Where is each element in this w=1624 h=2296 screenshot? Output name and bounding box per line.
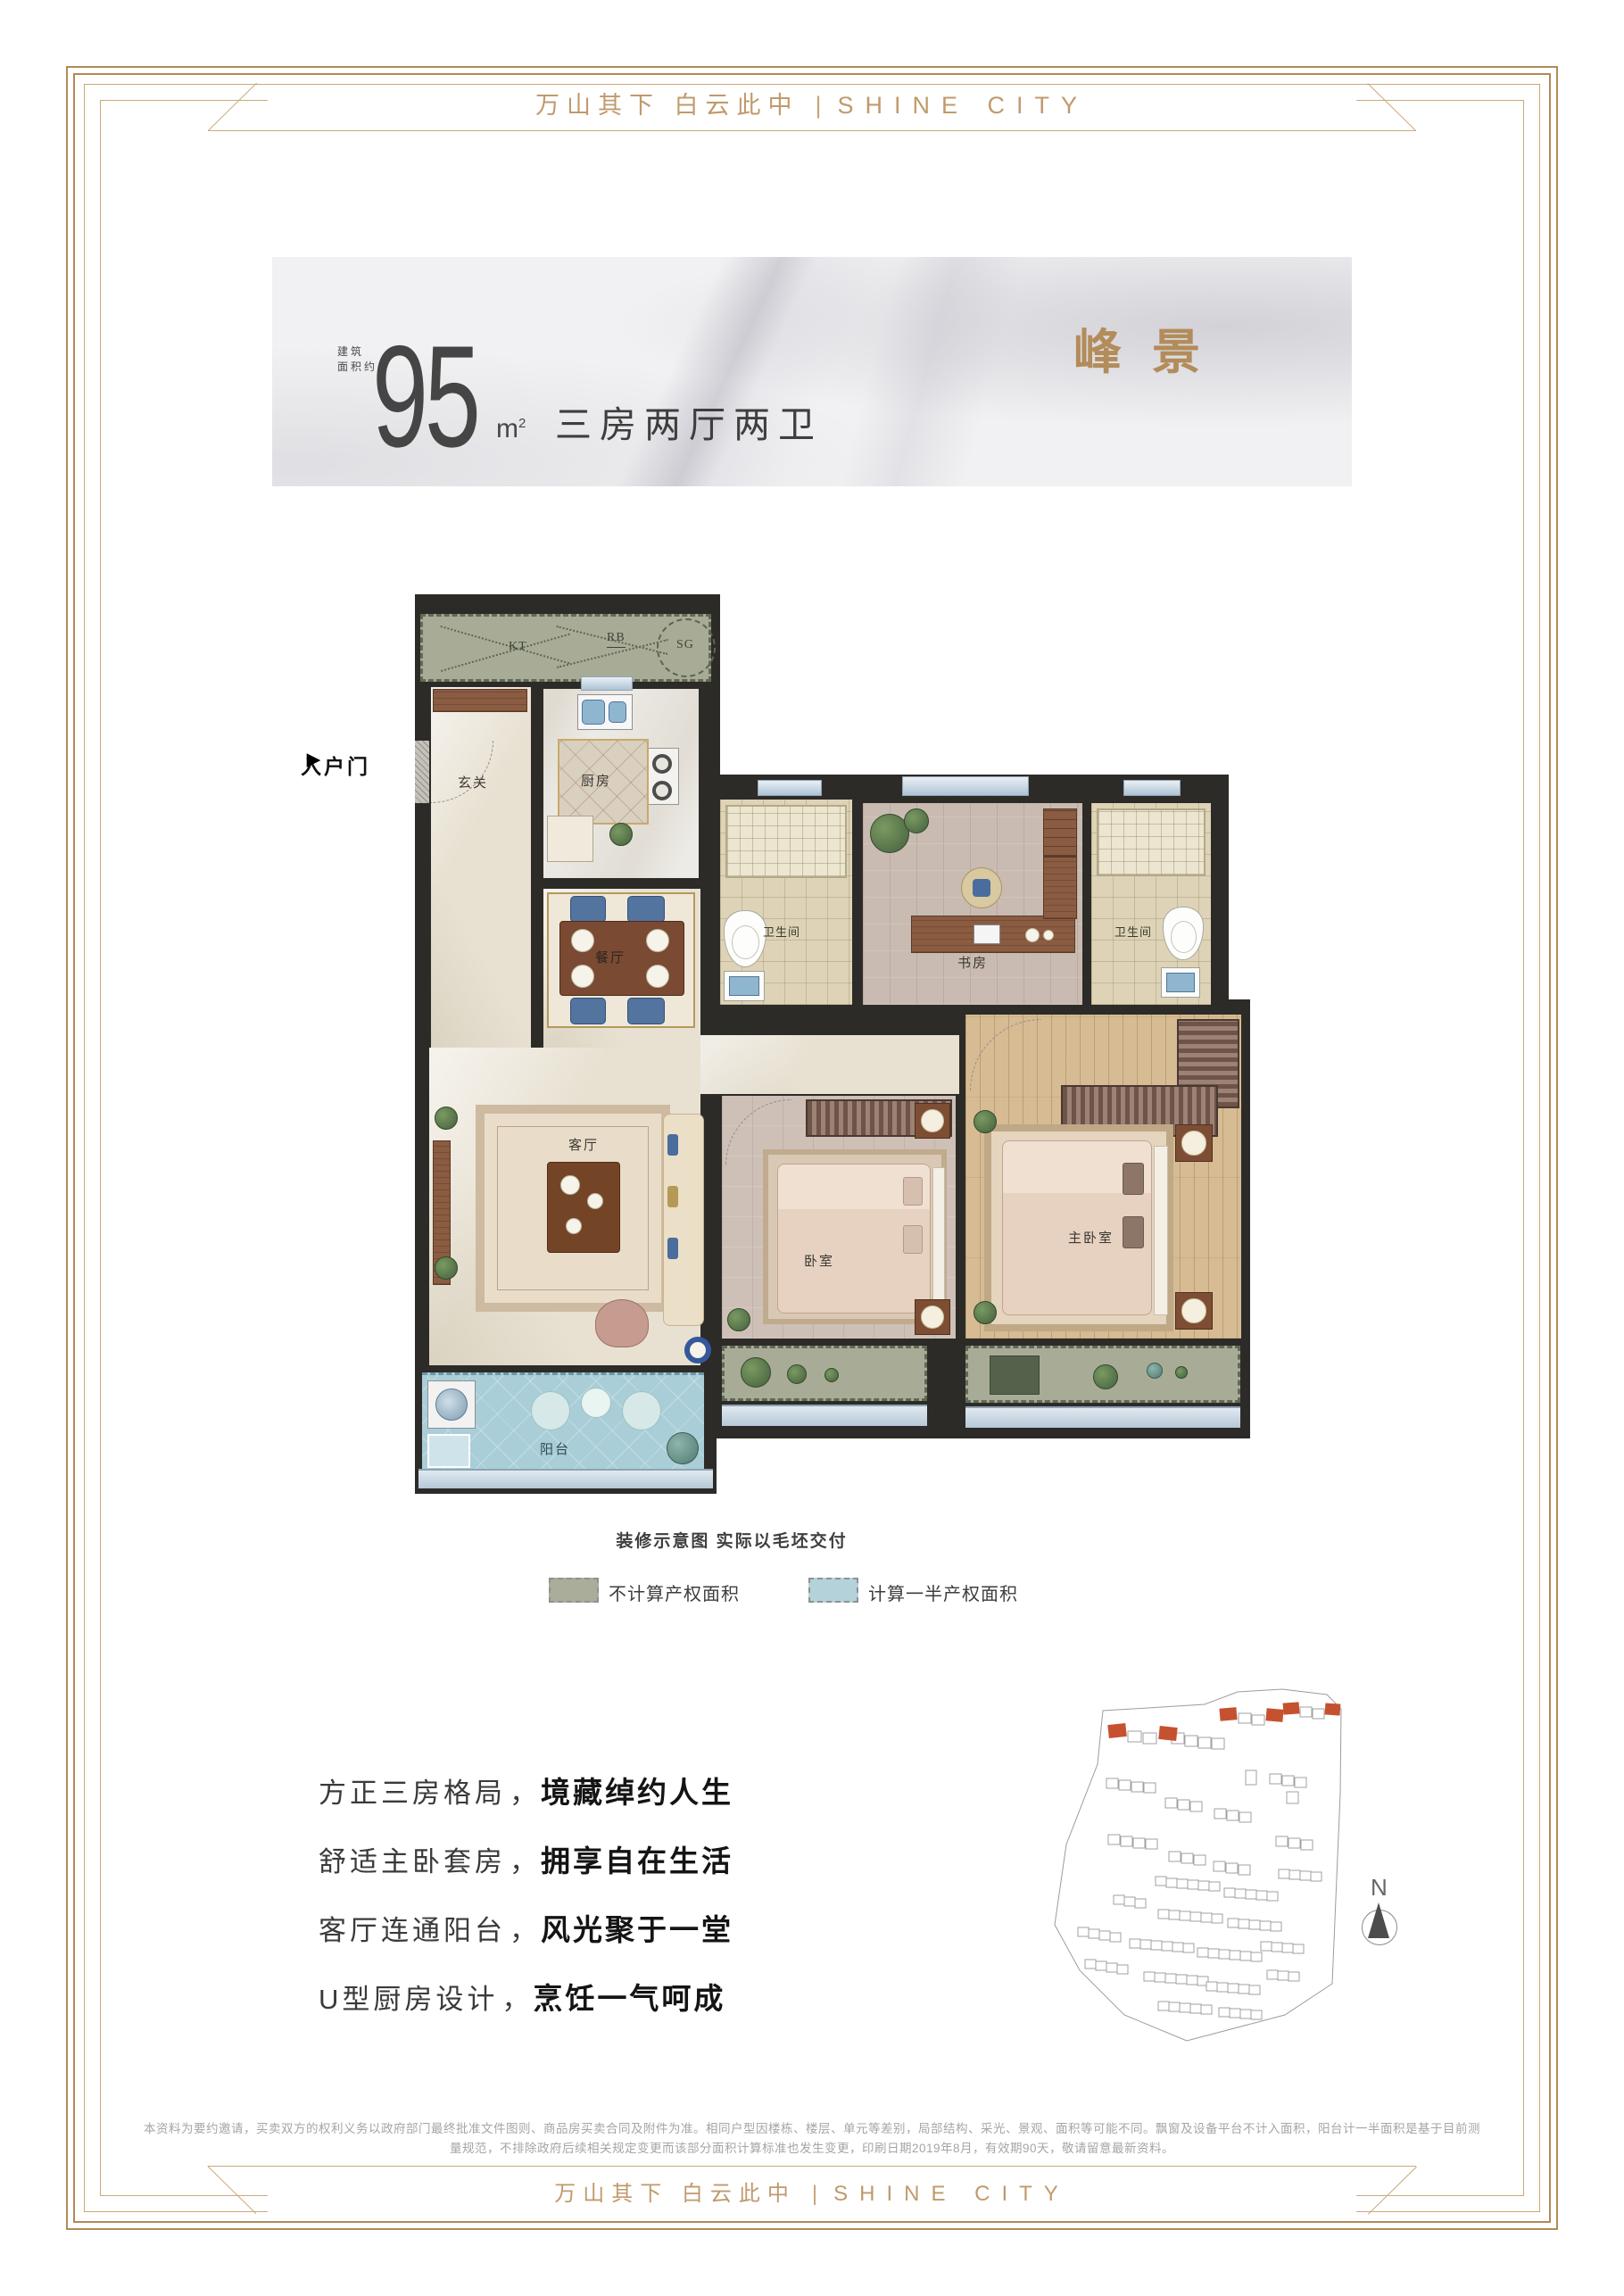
floor-lamp [684,1337,711,1364]
selling-point-comma: ， [510,1778,537,1809]
platform-guide-line [440,626,569,664]
selling-point-4: U型厨房设计，烹饪一气呵成 [319,1975,725,2018]
plant-icon [435,1256,458,1280]
room-label-balcony: 阳台 [540,1439,570,1458]
legend-swatch-half-property [808,1578,858,1603]
selling-point-comma: ， [510,1915,537,1946]
header-brand-divider: | [815,92,821,119]
room-label-dining: 餐厅 [595,948,626,966]
bath-sink [1161,967,1200,998]
room-bath-left: 卫生间 [720,800,852,1005]
balcony-table [581,1388,611,1418]
kitchen-cabinet [547,816,593,862]
kitchen-sink [577,694,633,730]
selling-point-lead: 客厅连通阳台 [319,1915,506,1946]
nightstand [915,1299,950,1335]
corridor [700,1035,959,1094]
kitchen-stove [645,748,679,805]
study-desk-return [1043,857,1077,919]
window-sill [965,1406,1240,1428]
header-brand: 万山其下 白云此中|SHINE CITY [0,86,1624,120]
study-chair [961,867,1002,908]
balcony-chair [531,1391,570,1430]
selling-point-3: 客厅连通阳台，风光聚于一堂 [319,1906,733,1949]
plant-icon [435,1107,458,1130]
selling-point-lead: 舒适主卧套房 [319,1846,506,1877]
room-study: 书房 [863,803,1082,1005]
floor-plan: 入户门▶ KT RB SG 厨房 玄关 [406,589,1254,1499]
room-living: 客厅 [429,1048,700,1365]
selling-point-2: 舒适主卧套房，拥享自在生活 [319,1837,733,1880]
shower-area [725,805,847,878]
bath-sink [724,971,765,1001]
room-label-bath-left: 卫生间 [763,923,800,940]
window-sill [722,1405,927,1426]
room-balcony: 阳台 [422,1372,704,1471]
area-unit: m2 [496,414,526,444]
footer-brand-cn: 万山其下 白云此中 [554,2182,796,2206]
plant-icon [974,1110,997,1133]
room-label-bedroom: 卧室 [804,1251,834,1270]
living-armchair [595,1299,649,1347]
coffee-table [547,1162,620,1253]
selling-point-bold: 境藏绰约人生 [541,1776,733,1809]
shoe-cabinet [433,689,527,712]
toilet [724,910,766,967]
brochure-page: { "page": { "brand_cn": "万山其下 白云此中", "br… [0,0,1624,2296]
selling-point-bold: 风光聚于一堂 [541,1913,733,1946]
plan-caption: 装修示意图 实际以毛坯交付 [321,1528,1142,1552]
dining-chair [570,998,606,1024]
selling-point-1: 方正三房格局，境藏绰约人生 [319,1769,733,1811]
header-brand-cn: 万山其下 白云此中 [535,92,800,119]
balcony-window-sill [418,1469,713,1488]
plant-icon [904,808,929,833]
platform-label-sg: SG [676,638,694,652]
bed-headboard [932,1167,945,1310]
balcony-chair [622,1391,661,1430]
selling-point-lead: U型厨房设计 [319,1984,498,2015]
dining-chair [570,896,606,923]
entry-door-arrow-icon: ▶ [307,750,323,770]
footer-brand-en: SHINE CITY [833,2182,1070,2206]
footer-brand: 万山其下 白云此中|SHINE CITY [0,2176,1624,2207]
layout-text: 三房两厅两卫 [555,394,823,448]
plant-icon [974,1301,997,1324]
room-label-kitchen: 厨房 [581,771,611,790]
unit-name: 峰景 [1073,312,1230,383]
selling-point-lead: 方正三房格局 [319,1778,506,1809]
room-dining: 餐厅 [543,889,700,1051]
legend-label-half-property: 计算一半产权面积 [868,1579,1018,1605]
footer-band-line [208,2166,1416,2167]
selling-point-comma: ， [501,1984,529,2015]
dining-chair [627,896,665,923]
plant-icon [727,1308,750,1331]
nightstand [915,1103,950,1139]
nightstand [1175,1124,1213,1162]
room-label-study: 书房 [957,953,988,972]
entry-door-opening [415,741,429,803]
site-map [1053,1685,1347,2051]
area-value: 95 [372,325,477,469]
bath-right-window [1123,780,1181,796]
plant-icon [609,823,633,846]
living-sofa [663,1114,704,1326]
header-brand-en: SHINE CITY [838,92,1090,119]
bedroom-bed [777,1164,931,1314]
kitchen-window [581,676,633,691]
room-label-living: 客厅 [568,1135,599,1154]
bookshelf [1043,808,1077,857]
balcony-basin [427,1434,470,1468]
shower-area [1097,808,1206,876]
disclaimer-line-2: 量规范，不排除政府后续相关规定变更而该部分面积计算标准也发生变更，印刷日期201… [0,2138,1624,2156]
dining-chair [627,998,665,1024]
footer-brand-divider: | [812,2182,817,2206]
plant-icon [667,1432,699,1464]
planter-box [990,1355,1040,1395]
washing-machine [427,1380,476,1429]
equipment-platform: KT RB SG [420,614,711,682]
selling-point-bold: 烹饪一气呵成 [533,1982,725,2015]
toilet [1163,907,1204,960]
desk-cup [1025,928,1040,942]
compass-north-label: N [1371,1874,1388,1902]
nightstand [1175,1292,1213,1330]
study-window [902,776,1029,796]
legend-label-no-property: 不计算产权面积 [609,1579,740,1605]
selling-point-comma: ， [510,1846,537,1877]
bed-headboard [1154,1146,1168,1315]
bath-left-window [758,780,822,796]
flower-bed-right [965,1346,1240,1403]
platform-label-rb: RB [607,631,626,648]
laptop [974,924,1000,944]
room-label-bath-right: 卫生间 [1114,923,1152,940]
desk-cup [1043,930,1054,941]
platform-label-kt: KT [509,640,527,654]
platform-guide-line [441,634,570,672]
flower-bed-left [722,1346,927,1401]
compass-arrow-icon [1368,1902,1389,1938]
room-label-master: 主卧室 [1068,1228,1114,1247]
selling-point-bold: 拥享自在生活 [541,1844,733,1877]
disclaimer-line-1: 本资料为要约邀请，买卖双方的权利义务以政府部门最终批准文件图则、商品房买卖合同及… [0,2118,1624,2136]
header-band-line [208,130,1416,131]
area-unit-sup: 2 [518,416,526,431]
unit-banner: 建筑 面积约 95 m2 三房两厅两卫 峰景 [272,257,1352,486]
legend-swatch-no-property [549,1578,599,1603]
room-kitchen: 厨房 [543,689,699,878]
room-bath-right: 卫生间 [1091,803,1211,1005]
